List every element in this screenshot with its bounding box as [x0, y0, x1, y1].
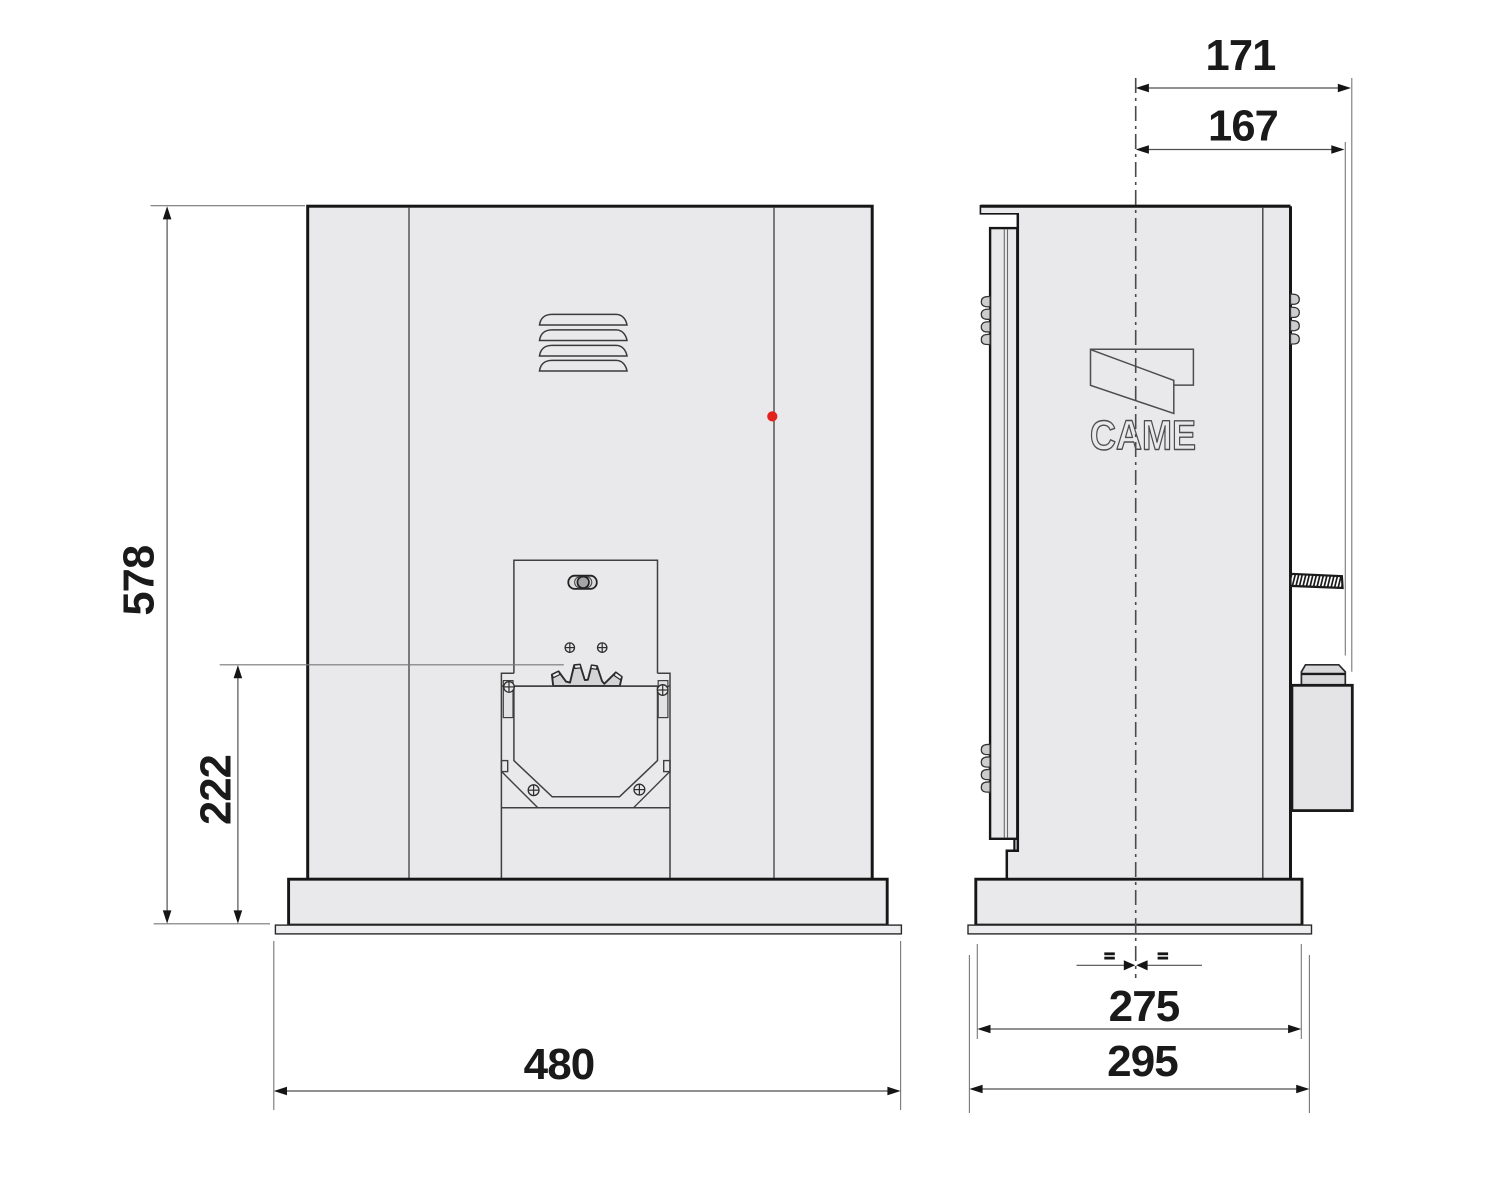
svg-text:480: 480 [524, 1040, 595, 1089]
svg-text:578: 578 [116, 546, 164, 616]
svg-text:167: 167 [1208, 103, 1278, 151]
svg-text:295: 295 [1107, 1037, 1178, 1086]
svg-text:275: 275 [1109, 982, 1180, 1031]
svg-text:222: 222 [193, 755, 241, 825]
svg-text:171: 171 [1206, 32, 1276, 80]
svg-text:CAME: CAME [1090, 411, 1196, 458]
